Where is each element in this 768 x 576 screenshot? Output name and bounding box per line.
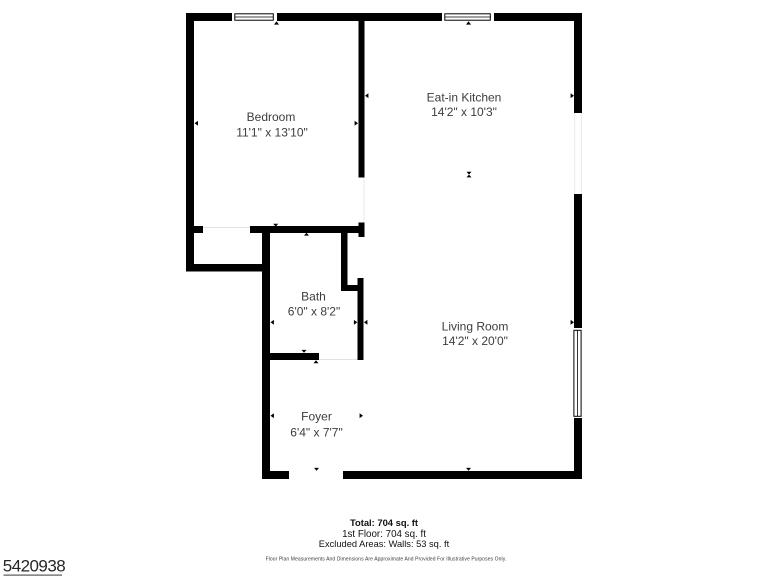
svg-text:Bedroom: Bedroom xyxy=(247,110,296,124)
svg-text:14'2" x 10'3": 14'2" x 10'3" xyxy=(431,105,497,119)
svg-text:14'2" x 20'0": 14'2" x 20'0" xyxy=(442,334,508,348)
svg-text:Excluded Areas: Walls: 53 sq.: Excluded Areas: Walls: 53 sq. ft xyxy=(319,539,450,549)
svg-text:6'0" x 8'2": 6'0" x 8'2" xyxy=(288,304,340,318)
svg-text:Bath: Bath xyxy=(301,289,326,303)
svg-text:6'4" x 7'7": 6'4" x 7'7" xyxy=(290,425,342,439)
svg-text:Floor Plan Measurements And Di: Floor Plan Measurements And Dimensions A… xyxy=(266,557,507,563)
svg-text:Eat-in Kitchen: Eat-in Kitchen xyxy=(427,91,502,105)
svg-text:Foyer: Foyer xyxy=(301,410,332,424)
svg-text:5420938: 5420938 xyxy=(3,556,65,575)
svg-text:Living Room: Living Room xyxy=(442,320,509,334)
svg-text:11'1" x 13'10": 11'1" x 13'10" xyxy=(236,126,308,140)
svg-text:Total: 704 sq. ft: Total: 704 sq. ft xyxy=(350,517,418,528)
